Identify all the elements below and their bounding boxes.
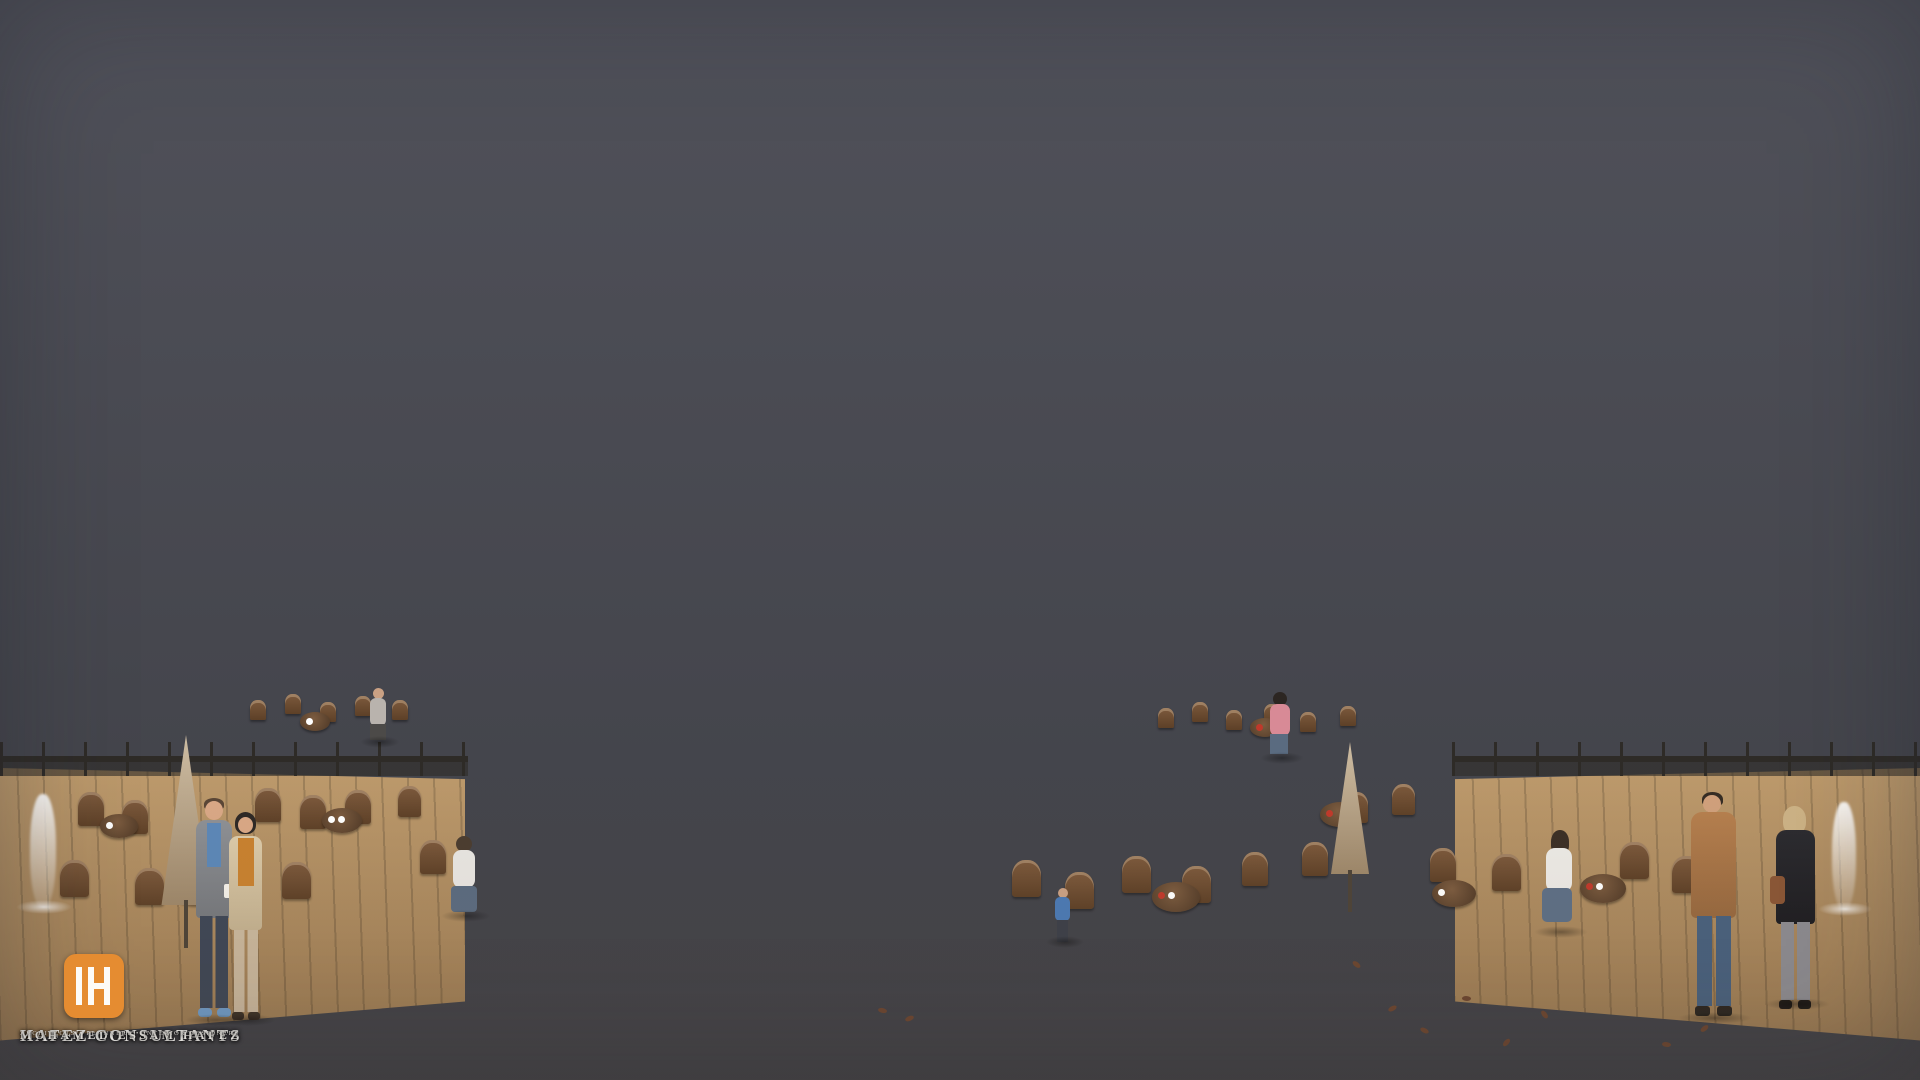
hafez-logo-mark	[64, 954, 124, 1018]
fallen-leaf	[1540, 1009, 1549, 1019]
fountain-splash	[1818, 902, 1872, 916]
fountain-splash	[16, 900, 72, 914]
fallen-leaf	[905, 1015, 915, 1022]
fallen-leaf	[1387, 1005, 1397, 1013]
watermark-logo: HAFEZ CONSULTANTS MOHAMED ESSAM HAFEZ AR…	[20, 948, 340, 1076]
fountain-jet	[1832, 802, 1856, 910]
architectural-render-scene: HAFEZ CONSULTANTS MOHAMED ESSAM HAFEZ AR…	[0, 0, 1920, 1080]
fallen-leaf	[1662, 1041, 1672, 1048]
fallen-leaf	[1501, 1038, 1511, 1048]
fountain-jet	[30, 794, 56, 908]
watermark-tagline: ARCHITECTS • PLANNERS • INTERIOR DESIGNE…	[20, 1030, 240, 1037]
fallen-leaf	[1419, 1026, 1429, 1035]
fallen-leaf	[877, 1007, 887, 1015]
fallen-leaf	[1462, 995, 1472, 1001]
fallen-leaf	[1352, 960, 1362, 970]
effects-layer	[0, 0, 1920, 1080]
h-lettermark-icon	[64, 954, 124, 1018]
fallen-leaf	[1699, 1024, 1709, 1033]
